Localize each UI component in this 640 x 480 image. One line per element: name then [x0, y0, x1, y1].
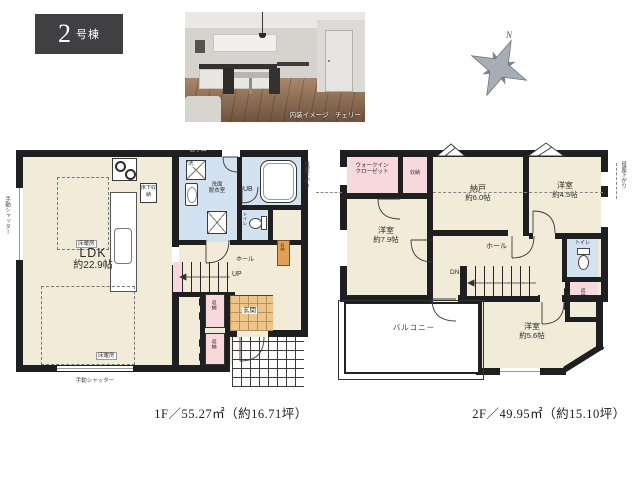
floor2-area-caption: 2F／49.95㎡（約15.10坪） [449, 403, 640, 422]
bedroom-a-size: 約7.9帖 [346, 236, 426, 244]
roof-slope-line [433, 192, 603, 193]
vanity-bowl [187, 187, 197, 203]
wall [268, 330, 308, 337]
window [340, 167, 347, 185]
stairs-up-label: UP [232, 271, 242, 279]
wall [230, 330, 237, 337]
window [340, 230, 347, 266]
stairs-down-label: DN [450, 269, 459, 276]
roof-slope-leader [316, 192, 342, 193]
f1-toilet-label: トイレ [243, 212, 248, 226]
f1-closet-lower [205, 333, 225, 365]
washing-machine-label: 洗 [188, 161, 194, 167]
storage-room-label: 納戸 約6.0帖 [433, 185, 523, 202]
building-number-badge: 2 号棟 [35, 14, 123, 54]
back-door-label: 勝手口 [190, 147, 207, 153]
bedroom-a-label: 洋室 約7.9帖 [346, 227, 426, 244]
window-line [500, 371, 540, 372]
wall [433, 230, 508, 236]
wall [340, 150, 608, 157]
shutter-bottom-label: 手動シャッター [60, 378, 130, 384]
porch-tiles [232, 337, 304, 387]
building-number: 2 [58, 21, 71, 47]
entrance-storage-label: 収納 [280, 243, 284, 251]
stove-burner [125, 169, 136, 180]
f1-hall-label: ホール [236, 257, 254, 264]
folding-door-mark [199, 339, 205, 347]
f2-hall-label: ホール [486, 243, 507, 251]
balcony [344, 302, 480, 374]
building-number-suffix: 号棟 [76, 26, 100, 42]
window-line [57, 368, 133, 369]
photo-caption: 内装イメージ チェリー [290, 112, 361, 119]
f1-understair-storage [173, 262, 182, 292]
compass-icon: N [462, 22, 540, 98]
f1-staircase [182, 262, 235, 292]
floor-heating-zone [41, 286, 135, 365]
toilet-tank [261, 216, 267, 230]
window-line [19, 188, 20, 260]
wall [482, 295, 540, 302]
floor-heating-label: 床暖房 [96, 352, 117, 360]
toilet-tank [577, 248, 590, 255]
folding-door-mark [564, 288, 570, 296]
washroom-line2: 脱衣室 [198, 188, 236, 194]
wall [237, 157, 242, 242]
photo-sofa [185, 96, 221, 122]
roof-slope-leader [616, 163, 617, 199]
inspection-hatch-icon [207, 211, 227, 234]
bedroom-b-label: 洋室 約4.5帖 [529, 182, 601, 199]
roof-note-left: 母屋下がり [303, 161, 309, 189]
balcony-label: バルコニー [384, 324, 444, 332]
floor1-area-caption: 1F／55.27㎡（約16.71坪） [131, 403, 331, 422]
back-door-opening [222, 150, 240, 157]
wic-line2: クローゼット [346, 169, 398, 175]
f2-closet-top-label: 収納 [403, 171, 427, 177]
folding-door-mark [564, 302, 570, 310]
folding-door-mark [199, 298, 205, 306]
wall [230, 240, 307, 245]
folding-door-mark [199, 353, 205, 361]
window [601, 197, 608, 227]
photo-wall-frame [195, 40, 205, 53]
ldk-label: LDK 約22.9帖 [50, 246, 136, 271]
f2-closet-side-label: 収納 [579, 288, 585, 298]
wall [427, 150, 433, 302]
wall [179, 240, 206, 245]
bedroom-c-size: 約5.6帖 [492, 332, 572, 340]
stove-burner [115, 161, 126, 172]
wall [340, 193, 432, 199]
window [601, 172, 608, 186]
underfloor-storage-label: 床下収納 [141, 185, 156, 198]
wall [16, 150, 23, 372]
photo-pendant-light [262, 12, 263, 34]
photo-back-counter [277, 62, 309, 66]
compass-star [462, 28, 539, 98]
entrance-label: 玄関 [242, 307, 257, 314]
walkin-closet-label: ウォークイン クローゼット [346, 163, 398, 175]
photo-upper-cabinets [213, 34, 277, 52]
shutter-left-label: 手動シャッター [4, 196, 10, 235]
wall [16, 150, 308, 157]
wall [529, 233, 533, 239]
f1-closet-upper-label: 収納 [210, 300, 216, 310]
photo-chair-right [269, 68, 280, 94]
folding-door-mark [199, 312, 205, 320]
storage-room-size: 約6.0帖 [433, 194, 523, 202]
ldk-size: 約22.9帖 [50, 260, 136, 271]
photo-pendant-shade [259, 33, 266, 38]
f1-closet-lower-label: 収納 [210, 339, 216, 349]
photo-door-knob [328, 60, 330, 62]
photo-chair-left [223, 68, 234, 94]
bathtub-inner [263, 163, 294, 200]
bedroom-c-label: 洋室 約5.6帖 [492, 323, 572, 340]
washroom-label: 洗面 脱衣室 [198, 182, 236, 194]
toilet-icon [578, 255, 589, 270]
floorplan-sheet: 2 号棟 内装イメージ チェリー N [0, 0, 640, 480]
unit-bath-label: UB [243, 186, 253, 194]
interior-photo: 内装イメージ チェリー [185, 12, 365, 122]
roof-note-right: 母屋下がり [620, 161, 626, 189]
wall [268, 210, 273, 240]
compass-north-label: N [505, 30, 513, 40]
photo-table-leg [249, 78, 252, 94]
ldk-name: LDK [50, 246, 136, 260]
f2-toilet-label: トイレ [566, 241, 599, 247]
f2-staircase [466, 266, 538, 296]
